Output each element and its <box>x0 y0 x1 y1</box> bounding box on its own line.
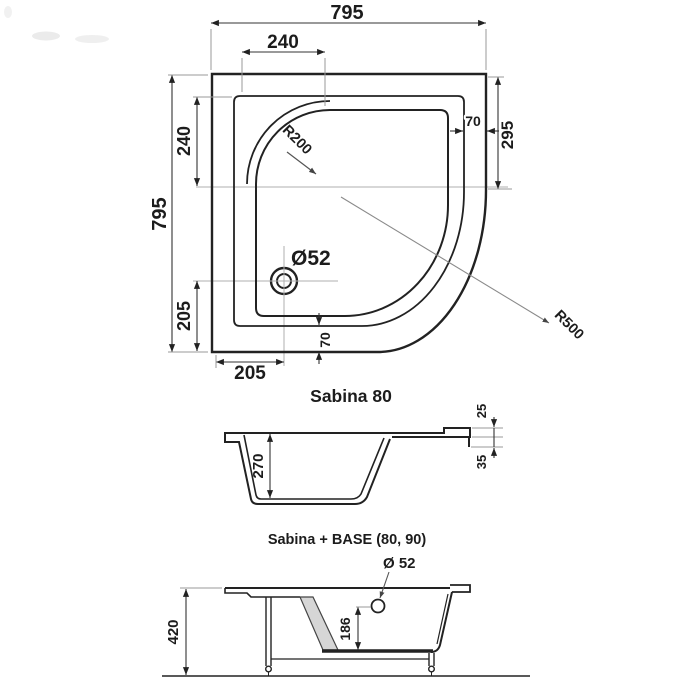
dim-25-label: 25 <box>474 404 489 418</box>
dim-35-label: 35 <box>474 455 489 469</box>
dim-420-label: 420 <box>165 619 182 644</box>
tray-rim-line <box>234 96 464 326</box>
shower-tray-drawing: 795 240 795 240 205 205 295 70 70 R200 R… <box>0 0 700 685</box>
section-edge-extensions <box>471 428 503 447</box>
radius-r200-label: R200 <box>279 122 315 158</box>
dim-270-label: 270 <box>250 453 267 478</box>
drain-diameter-label: Ø52 <box>291 247 331 270</box>
dim-240-left-label: 240 <box>174 126 194 156</box>
dim-795-top-label: 795 <box>330 2 363 24</box>
dim-70-right-label: 70 <box>465 113 481 129</box>
section-rim-ledge <box>242 428 470 447</box>
dim-70-bottom-label: 70 <box>317 332 333 348</box>
plan-view-labels: 795 240 795 240 205 205 295 70 70 R200 R… <box>149 2 587 384</box>
plan-view <box>168 23 549 368</box>
tray-outer-outline <box>212 74 486 352</box>
base-sloped-wall <box>300 597 338 650</box>
technical-drawing-page: 795 240 795 240 205 205 295 70 70 R200 R… <box>0 0 700 685</box>
plan-construction-lines <box>193 187 508 366</box>
dim-186 <box>356 607 371 650</box>
dim-205-bottom-label: 205 <box>234 363 266 384</box>
base-view-title: Sabina + BASE (80, 90) <box>268 532 427 548</box>
base-right-lip <box>450 585 470 592</box>
base-drain-label: Ø 52 <box>383 555 416 572</box>
dim-420 <box>180 588 222 675</box>
r500-leader <box>341 197 549 323</box>
radius-r500-label: R500 <box>551 307 587 343</box>
dim-205-left-label: 205 <box>174 301 194 331</box>
dim-186-label: 186 <box>337 617 353 641</box>
dim-240-top-label: 240 <box>267 32 299 53</box>
drain-section <box>372 600 385 613</box>
drain-leader <box>380 572 389 598</box>
dim-795-top <box>211 23 486 70</box>
base-left-step <box>225 588 300 597</box>
scan-artifacts <box>4 6 109 43</box>
side-view-title: Sabina 80 <box>310 386 392 406</box>
dim-240-top <box>242 52 325 106</box>
dim-295-right-label: 295 <box>498 121 517 149</box>
dim-795-left-label: 795 <box>149 197 171 230</box>
